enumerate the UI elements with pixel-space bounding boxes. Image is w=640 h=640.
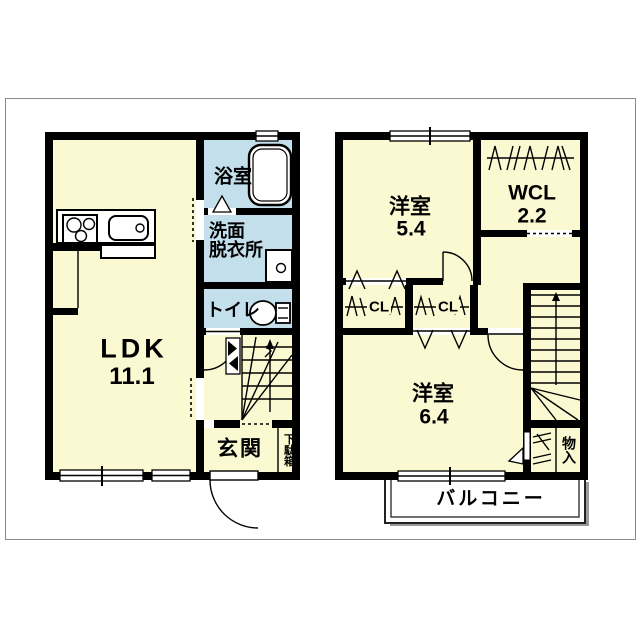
stove-icon: [63, 215, 97, 243]
bathtub-icon: [249, 145, 291, 205]
entrance-door-arc: [210, 471, 258, 528]
bedroom1-label: 洋室: [389, 197, 431, 218]
bedroom1-area-label: 5.4: [396, 219, 425, 240]
storage-label: 物入: [562, 436, 576, 464]
bathroom-label: 浴室: [214, 168, 252, 187]
closet1-label: CL: [367, 300, 391, 315]
shoe-cabinet-label: 下駄箱: [283, 434, 294, 467]
floorplan-image: 浴室 洗面 脱衣所 トイレ LDK 11.1 玄関 下駄箱 洋室 5.4 WCL…: [0, 0, 640, 640]
bedroom2-label: 洋室: [412, 384, 454, 405]
sink-icon: [109, 216, 148, 240]
wcl-opening: [527, 230, 572, 237]
closet2-label: CL: [436, 300, 460, 315]
toilet-label: トイレ: [206, 301, 260, 319]
window-1f-south-small: [152, 470, 190, 481]
balcony-label: バルコニー: [436, 490, 546, 509]
ldk-area-label: 11.1: [109, 365, 154, 389]
entrance-label: 玄関: [217, 439, 263, 460]
washroom-label-line2: 脱衣所: [209, 241, 263, 259]
wcl-area-label: 2.2: [517, 206, 546, 227]
floorplan-linework: [0, 0, 640, 640]
wcl-label: WCL: [508, 183, 556, 204]
washbasin-icon: [266, 250, 292, 282]
washroom-label-line1: 洗面: [209, 222, 245, 240]
window-1f-bath: [256, 131, 278, 141]
ldk-label: LDK: [100, 336, 168, 363]
bedroom2-area-label: 6.4: [419, 407, 448, 428]
toilet-door: [206, 328, 240, 335]
